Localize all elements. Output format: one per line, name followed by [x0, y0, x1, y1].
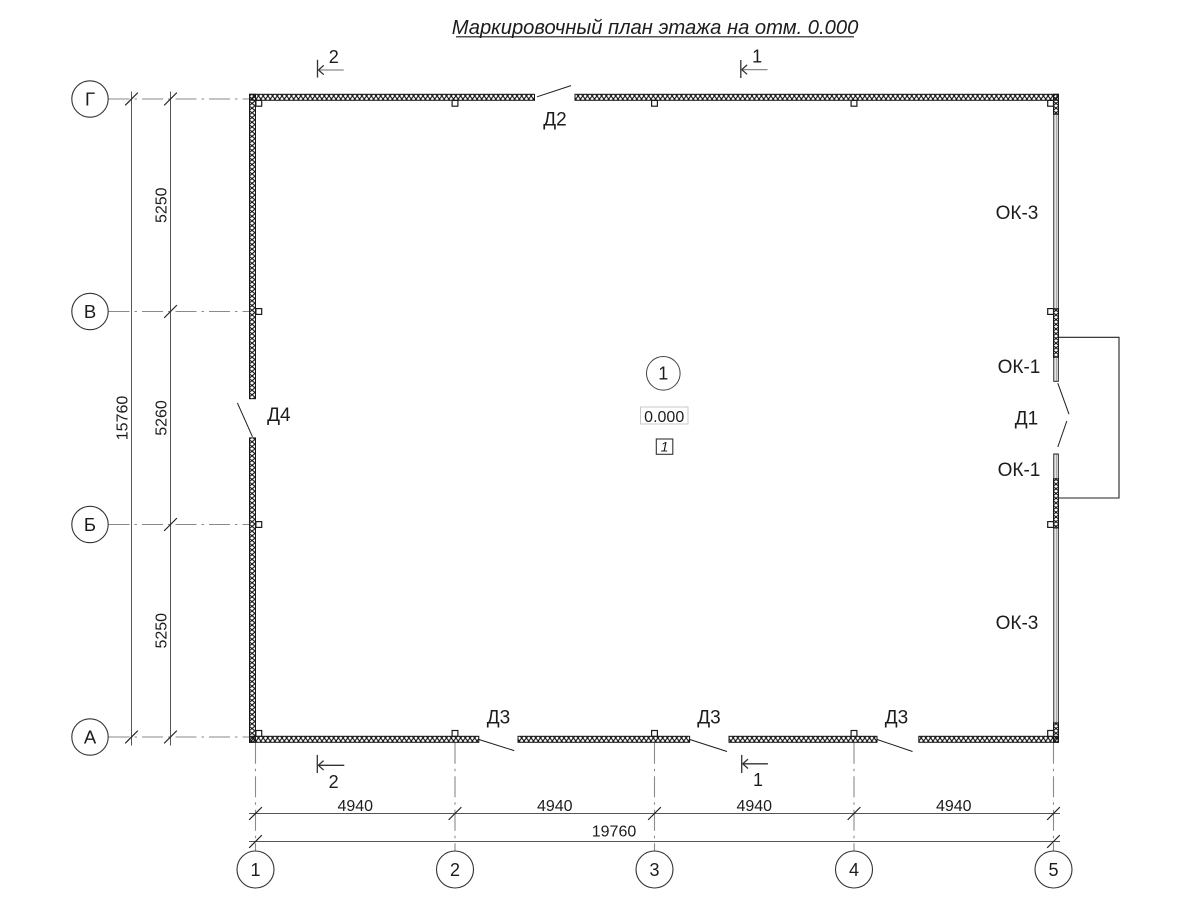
svg-text:Г: Г	[85, 89, 95, 110]
svg-text:ОК-1: ОК-1	[998, 357, 1041, 378]
svg-text:1: 1	[250, 860, 260, 880]
svg-text:2: 2	[329, 47, 339, 67]
svg-text:0.000: 0.000	[644, 409, 684, 426]
svg-text:ОК-3: ОК-3	[996, 203, 1039, 224]
svg-text:4: 4	[849, 860, 859, 880]
svg-text:4940: 4940	[337, 798, 373, 815]
svg-text:1: 1	[753, 770, 763, 790]
svg-text:1: 1	[661, 438, 669, 454]
svg-text:Д1: Д1	[1015, 409, 1038, 430]
svg-text:Б: Б	[84, 514, 96, 535]
svg-text:15760: 15760	[115, 396, 132, 441]
svg-text:5250: 5250	[154, 613, 171, 649]
svg-text:2: 2	[329, 772, 339, 792]
svg-text:19760: 19760	[592, 824, 637, 841]
svg-text:ОК-3: ОК-3	[996, 613, 1039, 634]
svg-text:5250: 5250	[154, 187, 171, 223]
svg-text:А: А	[84, 727, 97, 748]
svg-text:Д3: Д3	[697, 708, 720, 729]
svg-text:Д3: Д3	[487, 708, 510, 729]
svg-text:4940: 4940	[936, 798, 972, 815]
svg-text:В: В	[84, 301, 96, 322]
svg-text:1: 1	[752, 47, 762, 67]
svg-text:4940: 4940	[537, 798, 573, 815]
svg-text:2: 2	[450, 860, 460, 880]
svg-text:Д4: Д4	[267, 405, 291, 426]
svg-text:4940: 4940	[736, 798, 772, 815]
svg-text:5260: 5260	[154, 400, 171, 436]
svg-text:Д2: Д2	[543, 110, 566, 131]
svg-text:3: 3	[649, 860, 659, 880]
svg-text:5: 5	[1048, 860, 1058, 880]
svg-text:Маркировочный план этажа на от: Маркировочный план этажа на отм. 0.000	[452, 17, 859, 39]
svg-text:1: 1	[658, 364, 668, 384]
svg-text:Д3: Д3	[885, 708, 908, 729]
svg-text:ОК-1: ОК-1	[998, 460, 1041, 481]
